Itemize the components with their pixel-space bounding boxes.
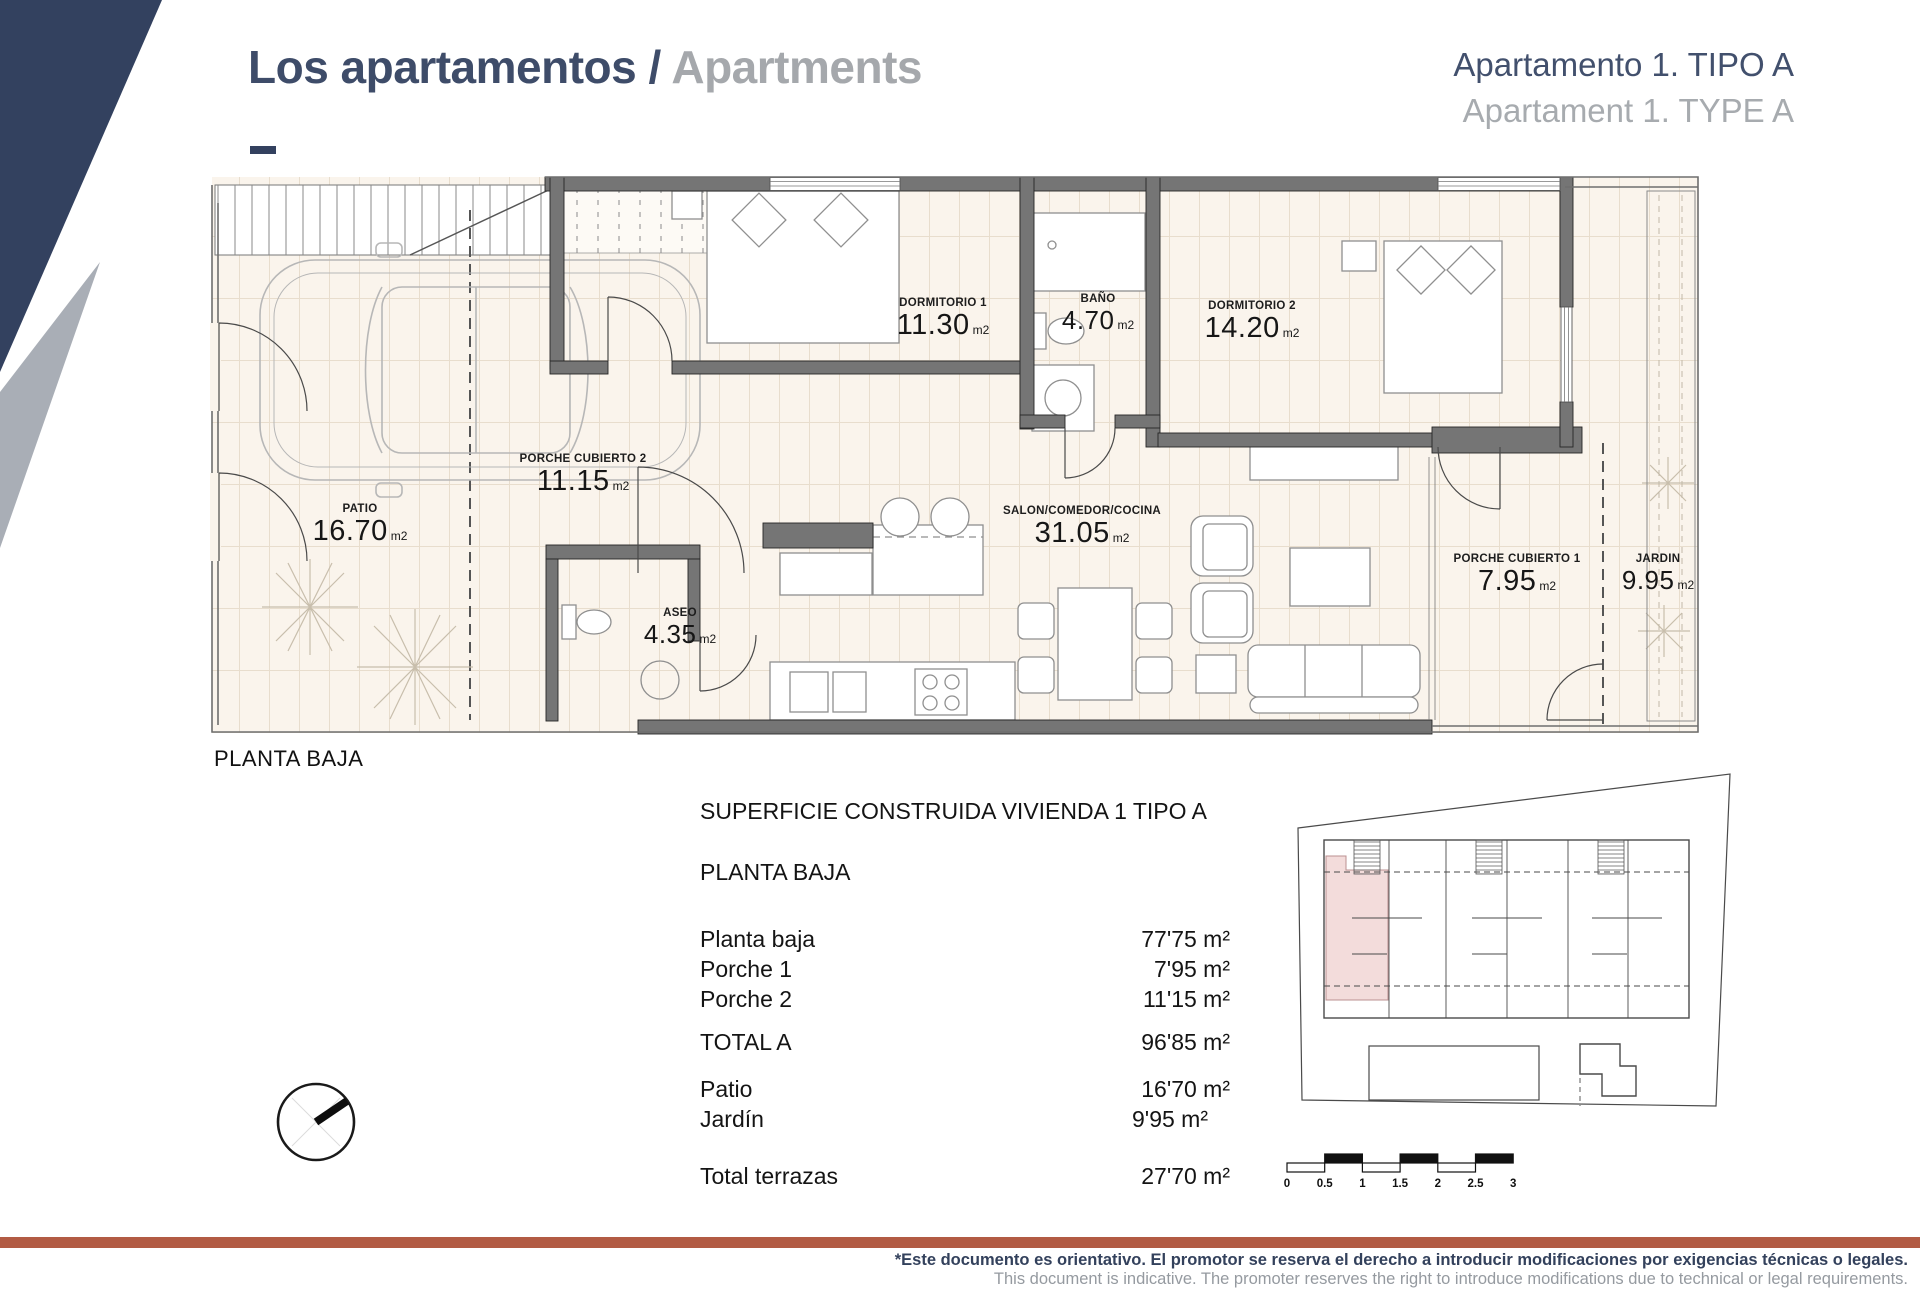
apartment-subtitle-es: Apartamento 1. TIPO A [1453,42,1794,88]
scale-tick-1: 1 [1359,1178,1365,1190]
disclaimer-es: *Este documento es orientativo. El promo… [895,1251,1908,1270]
scale-tick-3: 3 [1510,1178,1516,1190]
summary-row-planta-baja: Planta baja77'75 m² [700,924,1230,954]
scale-tick-2: 2 [1435,1178,1441,1190]
room-label-dormitorio-2: DORMITORIO 2 14.20m2 [1205,300,1300,345]
page-title-es: Los apartamentos [248,41,636,93]
plan-caption: PLANTA BAJA [214,746,363,772]
scale-tick-0: 0 [1284,1178,1290,1190]
corner-accent-navy [0,0,200,600]
site-plan [1292,768,1732,1108]
surface-summary: SUPERFICIE CONSTRUIDA VIVIENDA 1 TIPO A … [700,798,1230,1191]
summary-row-jardin: Jardín9'95 m² [700,1104,1230,1134]
scale-bar: 0 0.5 1 1.5 2 2.5 3 [1283,1148,1535,1194]
summary-row-porche-2: Porche 211'15 m² [700,984,1230,1014]
apartment-subtitle: Apartamento 1. TIPO A Apartament 1. TYPE… [1453,42,1794,134]
footer-disclaimer: *Este documento es orientativo. El promo… [895,1251,1908,1289]
summary-title: SUPERFICIE CONSTRUIDA VIVIENDA 1 TIPO A [700,798,1230,825]
summary-row-total-terrazas: Total terrazas27'70 m² [700,1161,1230,1191]
scale-tick-1-5: 1.5 [1392,1178,1408,1190]
floor-plan: DORMITORIO 1 11.30m2 BAÑO 4.70m2 DORMITO… [210,175,1700,745]
summary-row-porche-1: Porche 17'95 m² [700,954,1230,984]
page-title-en: Apartments [671,41,922,93]
summary-row-total-a: TOTAL A96'85 m² [700,1027,1230,1057]
room-label-porche-cubierto-1: PORCHE CUBIERTO 1 7.95m2 [1454,553,1581,598]
room-label-porche-cubierto-2: PORCHE CUBIERTO 2 11.15m2 [520,453,647,498]
summary-row-patio: Patio16'70 m² [700,1074,1230,1104]
room-label-aseo: ASEO 4.35m2 [644,607,716,650]
scale-tick-0-5: 0.5 [1317,1178,1333,1190]
room-label-jardin: JARDIN 9.95m2 [1622,553,1694,596]
north-compass-icon [270,1076,362,1168]
apartment-subtitle-en: Apartament 1. TYPE A [1453,88,1794,134]
room-label-salon-comedor-cocina: SALON/COMEDOR/COCINA 31.05m2 [1003,505,1161,550]
title-dash [250,146,276,154]
room-label-patio: PATIO 16.70m2 [313,503,408,548]
scale-tick-2-5: 2.5 [1468,1178,1484,1190]
floor-plan-drawing [210,175,1700,745]
room-label-bano: BAÑO 4.70m2 [1062,293,1134,336]
summary-section: PLANTA BAJA [700,859,1230,886]
page-title: Los apartamentos / Apartments [248,40,922,94]
room-label-dormitorio-1: DORMITORIO 1 11.30m2 [897,297,990,342]
footer-accent-bar [0,1237,1920,1248]
